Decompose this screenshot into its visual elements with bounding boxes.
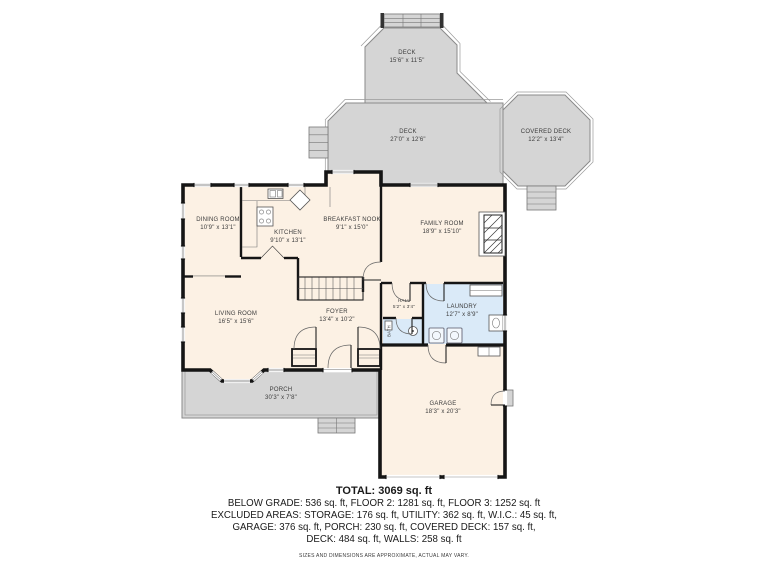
room-name: BATH — [388, 325, 393, 337]
washer — [429, 328, 444, 343]
room-label-laundry: LAUNDRY 12'7" x 8'9" — [446, 304, 478, 319]
room-name: PORCH — [265, 387, 297, 395]
room-dims: 18'9" x 15'10" — [420, 229, 463, 237]
room-dims: 9'1" x 15'0" — [323, 225, 380, 233]
deck-top — [365, 28, 487, 103]
room-name: DINING ROOM — [196, 217, 240, 225]
room-name: GARAGE — [425, 401, 461, 409]
total-area: TOTAL: 3069 sq. ft — [0, 485, 768, 497]
dryer — [447, 328, 462, 343]
room-label-bath: BATH — [388, 325, 393, 337]
room-label-covered-deck: COVERED DECK 12'2" x 13'4" — [521, 129, 571, 144]
room-dims: 13'4" x 10'2" — [319, 317, 355, 325]
summary-line-2: EXCLUDED AREAS: STORAGE: 176 sq. ft, UTI… — [0, 510, 768, 522]
room-dims: 10'9" x 13'1" — [196, 225, 240, 233]
room-label-garage: GARAGE 18'3" x 20'3" — [425, 401, 461, 416]
room-label-foyer: FOYER 13'4" x 10'2" — [319, 309, 355, 324]
room-name: DECK — [390, 129, 426, 137]
stove — [257, 207, 273, 226]
laundry-sink-cabinet — [489, 315, 503, 331]
summary-line-4: DECK: 484 sq. ft, WALLS: 258 sq. ft — [0, 534, 768, 546]
area-summary: TOTAL: 3069 sq. ft BELOW GRADE: 536 sq. … — [0, 485, 768, 559]
room-dims: 18'3" x 20'3" — [425, 409, 461, 417]
room-dims: 15'6" x 11'5" — [389, 58, 424, 66]
room-dims: 16'5" x 15'6" — [215, 319, 257, 327]
room-label-dining-room: DINING ROOM 10'9" x 13'1" — [196, 217, 240, 232]
summary-line-3: GARAGE: 376 sq. ft, PORCH: 230 sq. ft, C… — [0, 522, 768, 534]
room-label-family-room: FAMILY ROOM 18'9" x 15'10" — [420, 221, 463, 236]
room-dims: 27'0" x 12'6" — [390, 137, 426, 145]
room-label-living-room: LIVING ROOM 16'5" x 15'6" — [215, 311, 257, 326]
room-name: KITCHEN — [270, 230, 306, 238]
room-label-deck-main: DECK 27'0" x 12'6" — [390, 129, 426, 144]
room-dims: 9'10" x 13'1" — [270, 238, 306, 246]
room-dims: 5'2" x 3'4" — [393, 304, 415, 310]
room-label-hall: HALL 5'2" x 3'4" — [393, 298, 415, 309]
summary-line-1: BELOW GRADE: 536 sq. ft, FLOOR 2: 1281 s… — [0, 498, 768, 510]
room-name: FOYER — [319, 309, 355, 317]
room-dims: 12'7" x 8'9" — [446, 312, 478, 320]
room-label-kitchen: KITCHEN 9'10" x 13'1" — [270, 230, 306, 245]
deck-top-railing-box — [384, 14, 440, 27]
floor-plan-page: DECK 15'6" x 11'5" DECK 27'0" x 12'6" CO… — [0, 0, 768, 576]
room-dims: 30'3" x 7'8" — [265, 395, 297, 403]
room-name: LIVING ROOM — [215, 311, 257, 319]
room-label-breakfast-nook: BREAKFAST NOOK 9'1" x 15'0" — [323, 217, 380, 232]
room-label-porch: PORCH 30'3" x 7'8" — [265, 387, 297, 402]
disclaimer-text: SIZES AND DIMENSIONS ARE APPROXIMATE, AC… — [0, 553, 768, 559]
room-name: LAUNDRY — [446, 304, 478, 312]
room-name: COVERED DECK — [521, 129, 571, 137]
room-dims: 12'2" x 13'4" — [521, 137, 571, 145]
room-name: BREAKFAST NOOK — [323, 217, 380, 225]
room-label-deck-upper: DECK 15'6" x 11'5" — [389, 50, 424, 65]
room-name: FAMILY ROOM — [420, 221, 463, 229]
room-name: DECK — [389, 50, 424, 58]
